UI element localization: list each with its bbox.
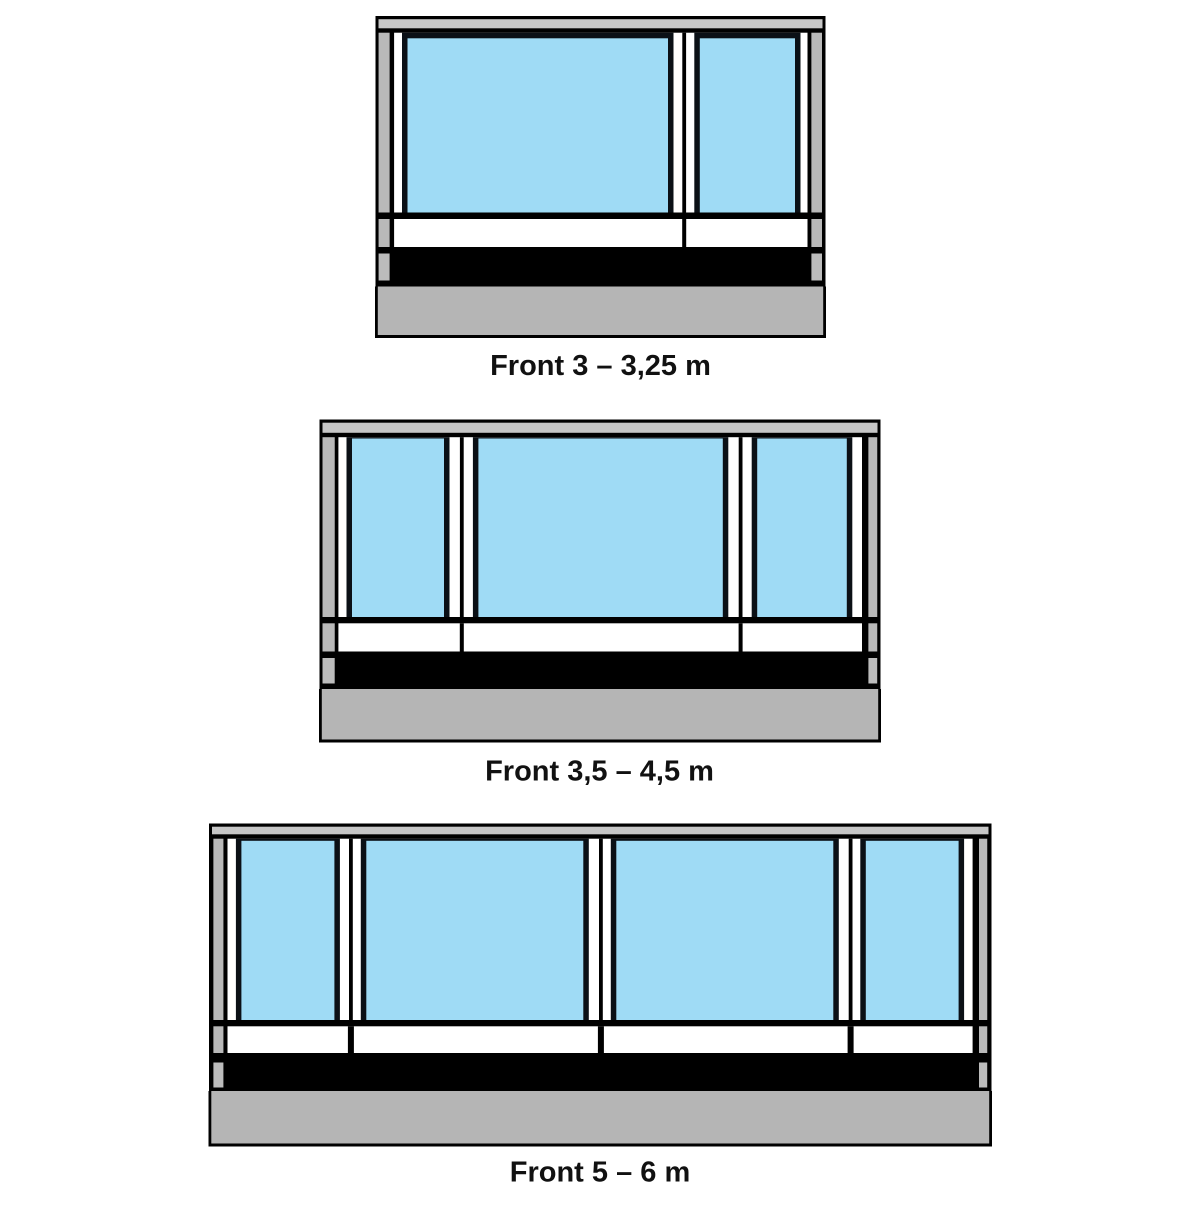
- svg-text:Front 5 – 6 m: Front 5 – 6 m: [510, 1157, 691, 1189]
- svg-text:Front 3 – 3,25 m: Front 3 – 3,25 m: [490, 350, 711, 382]
- svg-text:Front 3,5 – 4,5 m: Front 3,5 – 4,5 m: [485, 756, 714, 788]
